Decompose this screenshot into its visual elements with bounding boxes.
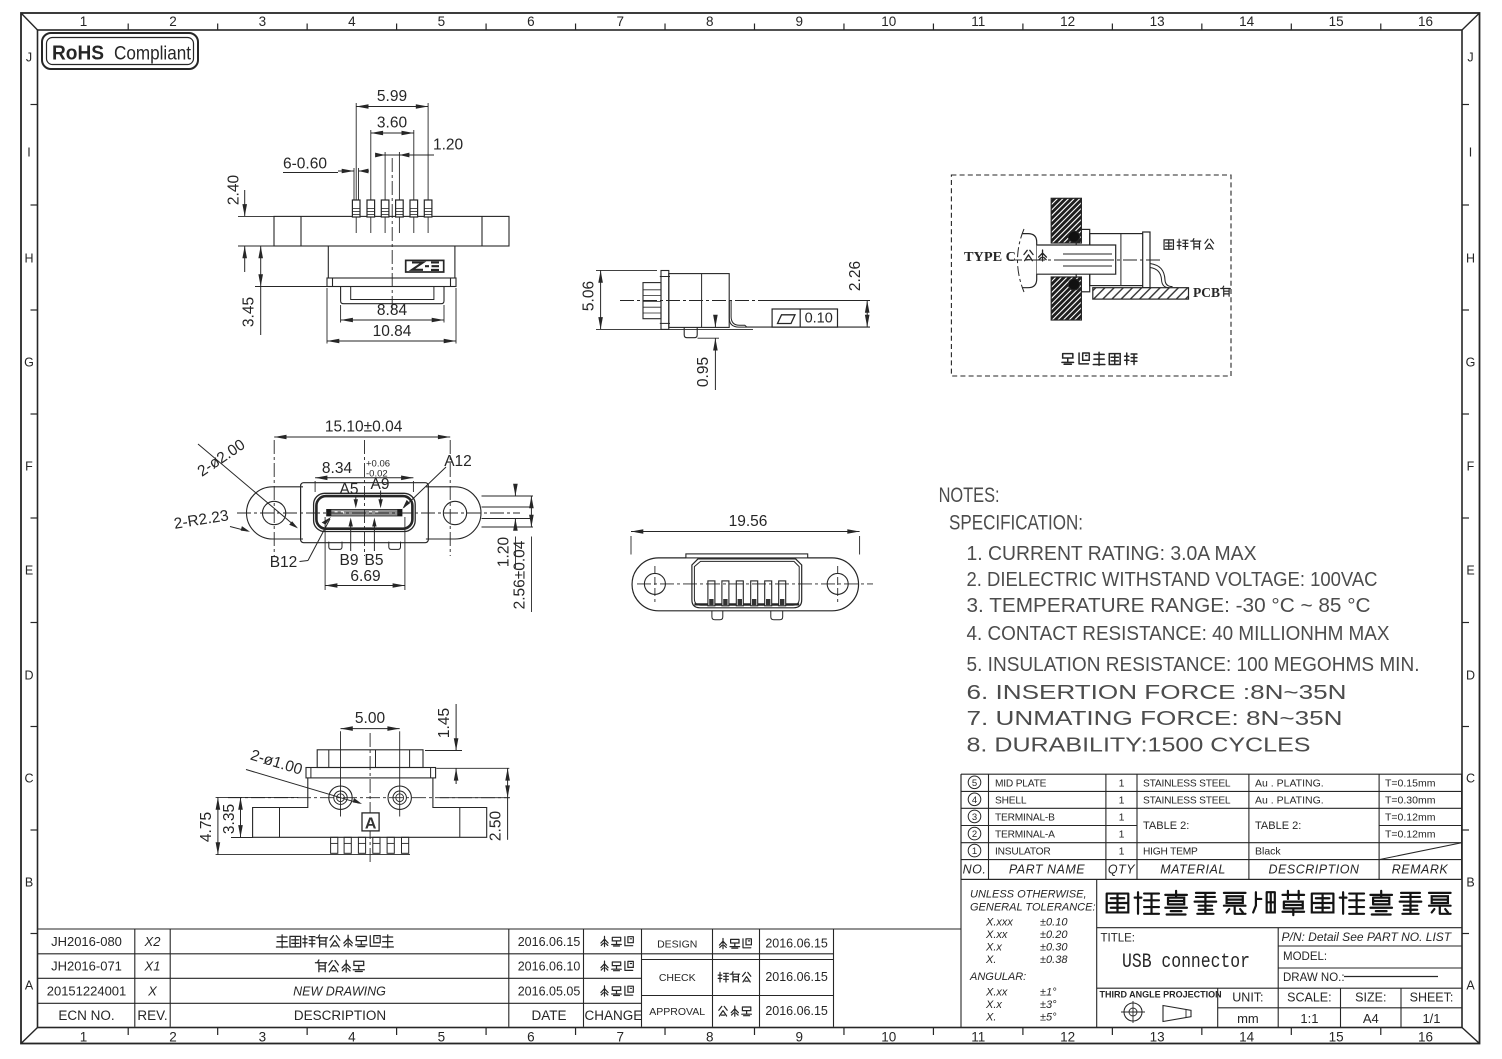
- svg-text:TITLE:: TITLE:: [1101, 933, 1136, 945]
- svg-text:1. CURRENT RATING: 3.0A MA: 1. CURRENT RATING: 3.0A MAX: [967, 542, 1257, 565]
- svg-text:ANGULAR:: ANGULAR:: [969, 971, 1026, 983]
- svg-text:D: D: [24, 669, 33, 683]
- svg-text:3.35: 3.35: [221, 804, 238, 834]
- svg-text:Au . PLATING.: Au . PLATING.: [1255, 794, 1324, 806]
- svg-text:GENERAL TOLERANCE:: GENERAL TOLERANCE:: [970, 902, 1096, 914]
- svg-text:C: C: [24, 772, 33, 786]
- svg-text:10.84: 10.84: [373, 323, 412, 340]
- svg-text:Black: Black: [1255, 846, 1281, 858]
- svg-text:G: G: [1466, 356, 1476, 370]
- svg-text:INSULATOR: INSULATOR: [995, 847, 1051, 858]
- svg-text:11: 11: [971, 14, 985, 29]
- svg-text:5: 5: [972, 778, 977, 789]
- svg-text:15: 15: [1329, 1030, 1344, 1045]
- svg-text:A: A: [1466, 979, 1475, 993]
- svg-text:9: 9: [796, 14, 804, 29]
- svg-text:NO.: NO.: [963, 863, 987, 877]
- svg-text:USB connector: USB connector: [1122, 951, 1250, 974]
- svg-text:B5: B5: [365, 552, 384, 569]
- svg-text:X.x: X.x: [985, 999, 1002, 1011]
- svg-text:JH2016-080: JH2016-080: [51, 934, 122, 949]
- svg-text:13: 13: [1150, 14, 1165, 29]
- svg-text:SIZE:: SIZE:: [1355, 991, 1386, 1005]
- svg-text:2.50: 2.50: [488, 811, 505, 842]
- svg-text:5. INSULATION RESISTANCE: 1: 5. INSULATION RESISTANCE: 100 MEGOHMS MI…: [967, 653, 1420, 676]
- svg-text:2016.05.05: 2016.05.05: [518, 984, 581, 998]
- svg-text:±0.38: ±0.38: [1040, 954, 1068, 966]
- svg-text:0.10: 0.10: [805, 310, 833, 326]
- svg-text:X2: X2: [144, 934, 162, 949]
- svg-text:A12: A12: [444, 453, 472, 470]
- svg-text:15.10±0.04: 15.10±0.04: [325, 419, 403, 436]
- svg-text:MODEL:: MODEL:: [1283, 951, 1327, 963]
- svg-text:B12: B12: [270, 554, 298, 571]
- svg-text:TABLE 2:: TABLE 2:: [1143, 820, 1189, 832]
- svg-text:3. TEMPERATURE RANGE: -30 °: 3. TEMPERATURE RANGE: -30 °C ~ 85 °C: [967, 594, 1371, 617]
- svg-text:A9: A9: [371, 476, 390, 493]
- svg-text:F: F: [1467, 460, 1475, 474]
- svg-text:2.56±0.04: 2.56±0.04: [512, 540, 529, 609]
- svg-text:6: 6: [527, 1030, 535, 1045]
- svg-text:±1°: ±1°: [1040, 987, 1057, 999]
- svg-text:NOTES:: NOTES:: [939, 484, 1000, 507]
- svg-text:A4: A4: [1363, 1011, 1379, 1026]
- svg-text:2: 2: [169, 14, 177, 29]
- svg-text:7: 7: [617, 1030, 625, 1045]
- svg-text:C: C: [1466, 772, 1475, 786]
- svg-text:REV.: REV.: [137, 1008, 167, 1023]
- svg-text:2.40: 2.40: [226, 175, 243, 206]
- svg-text:UNLESS OTHERWISE,: UNLESS OTHERWISE,: [970, 889, 1087, 901]
- svg-text:4. CONTACT RESISTANCE: 40: 4. CONTACT RESISTANCE: 40 MILLIONHM MAX: [967, 622, 1390, 645]
- svg-text:8. DURABILITY:1500 CYCLES: 8. DURABILITY:1500 CYCLES: [967, 734, 1311, 757]
- svg-text:TERMINAL-A: TERMINAL-A: [995, 830, 1055, 841]
- svg-text:8: 8: [706, 14, 714, 29]
- svg-text:X.x: X.x: [985, 942, 1002, 954]
- svg-text:ECN NO.: ECN NO.: [58, 1008, 114, 1023]
- svg-text:X.xx: X.xx: [985, 987, 1008, 999]
- svg-text:DESIGN: DESIGN: [657, 939, 697, 951]
- svg-text:X.xxx: X.xxx: [985, 917, 1013, 929]
- svg-text:1: 1: [972, 846, 977, 857]
- svg-text:JH2016-071: JH2016-071: [51, 959, 122, 974]
- svg-text:3: 3: [259, 1030, 267, 1045]
- svg-text:1:1: 1:1: [1300, 1011, 1318, 1026]
- svg-text:5: 5: [438, 1030, 446, 1045]
- svg-text:20151224001: 20151224001: [47, 983, 127, 998]
- svg-text:2: 2: [972, 829, 977, 840]
- svg-text:CHECK: CHECK: [659, 972, 696, 984]
- svg-text:5.00: 5.00: [355, 710, 386, 727]
- svg-text:UNIT:: UNIT:: [1232, 991, 1263, 1005]
- svg-text:4: 4: [348, 1030, 356, 1045]
- svg-text:6.69: 6.69: [350, 568, 380, 585]
- svg-text:3.60: 3.60: [377, 115, 408, 132]
- svg-text:I: I: [27, 146, 30, 160]
- svg-text:8.34: 8.34: [322, 460, 353, 477]
- svg-text:T=0.30mm: T=0.30mm: [1385, 794, 1436, 806]
- svg-text:1.20: 1.20: [496, 537, 513, 568]
- svg-text:MATERIAL: MATERIAL: [1160, 863, 1226, 877]
- svg-text:T=0.15mm: T=0.15mm: [1385, 777, 1436, 789]
- svg-text:7: 7: [617, 14, 625, 29]
- svg-text:1: 1: [80, 1030, 88, 1045]
- svg-text:DRAW NO.:: DRAW NO.:: [1283, 972, 1345, 984]
- svg-text:6-0.60: 6-0.60: [283, 156, 327, 173]
- svg-text:8.84: 8.84: [377, 302, 408, 319]
- svg-text:A5: A5: [340, 481, 359, 498]
- svg-text:1: 1: [1119, 777, 1125, 789]
- svg-text:J: J: [1467, 51, 1473, 65]
- svg-text:TABLE 2:: TABLE 2:: [1255, 820, 1301, 832]
- svg-text:13: 13: [1150, 1030, 1165, 1045]
- svg-text:Compliant: Compliant: [114, 44, 192, 65]
- svg-text:X1: X1: [144, 959, 161, 974]
- svg-text:1: 1: [80, 14, 88, 29]
- svg-text:2-ø1.00: 2-ø1.00: [248, 747, 304, 779]
- svg-text:B: B: [25, 876, 33, 890]
- svg-text:8: 8: [706, 1030, 714, 1045]
- svg-text:TERMINAL-B: TERMINAL-B: [995, 812, 1055, 823]
- svg-text:±5°: ±5°: [1040, 1012, 1057, 1024]
- svg-text:E: E: [25, 564, 33, 578]
- svg-text:A: A: [25, 979, 34, 993]
- svg-text:STAINLESS STEEL: STAINLESS STEEL: [1143, 778, 1231, 789]
- svg-text:J: J: [26, 51, 32, 65]
- svg-text:9: 9: [796, 1030, 804, 1045]
- svg-text:2016.06.15: 2016.06.15: [765, 937, 828, 951]
- svg-text:PCB: PCB: [1193, 285, 1220, 300]
- svg-text:REMARK: REMARK: [1392, 863, 1449, 877]
- svg-text:7. UNMATING FORCE: 8N~35: 7. UNMATING FORCE: 8N~35N: [967, 707, 1343, 730]
- svg-text:6: 6: [527, 14, 535, 29]
- svg-text:E: E: [1466, 564, 1474, 578]
- svg-text:HIGH TEMP: HIGH TEMP: [1143, 847, 1198, 858]
- svg-text:4: 4: [972, 795, 977, 806]
- svg-text:RoHS: RoHS: [52, 42, 104, 65]
- svg-text:15: 15: [1329, 14, 1344, 29]
- svg-text:CHANGE: CHANGE: [585, 1008, 643, 1023]
- svg-text:DESCRIPTION: DESCRIPTION: [294, 1008, 386, 1023]
- svg-text:X.xx: X.xx: [985, 929, 1008, 941]
- svg-text:B9: B9: [340, 552, 359, 569]
- svg-text:1: 1: [1119, 811, 1125, 823]
- svg-text:10: 10: [881, 1030, 896, 1045]
- svg-text:SCALE:: SCALE:: [1287, 991, 1331, 1005]
- svg-text:2-R2.23: 2-R2.23: [173, 507, 230, 532]
- svg-text:SHELL: SHELL: [995, 795, 1027, 806]
- svg-text:3: 3: [259, 14, 267, 29]
- svg-text:16: 16: [1418, 14, 1433, 29]
- svg-text:QTY: QTY: [1108, 863, 1136, 877]
- svg-text:5: 5: [438, 14, 446, 29]
- svg-text:T=0.12mm: T=0.12mm: [1385, 811, 1436, 823]
- svg-text:H: H: [1466, 252, 1475, 266]
- svg-text:2016.06.15: 2016.06.15: [765, 1004, 828, 1018]
- svg-text:X.: X.: [985, 1012, 996, 1024]
- svg-text:±0.20: ±0.20: [1040, 929, 1068, 941]
- svg-text:Au . PLATING.: Au . PLATING.: [1255, 777, 1324, 789]
- svg-text:4.75: 4.75: [198, 812, 215, 842]
- svg-text:0.95: 0.95: [695, 357, 712, 387]
- svg-text:D: D: [1466, 669, 1475, 683]
- svg-text:P/N: Detail See PART NO. LIST: P/N: Detail See PART NO. LIST: [1282, 930, 1453, 944]
- svg-text:MID PLATE: MID PLATE: [995, 778, 1047, 789]
- svg-text:5.06: 5.06: [581, 281, 598, 311]
- svg-text:mm: mm: [1237, 1011, 1259, 1026]
- svg-text:APPROVAL: APPROVAL: [649, 1006, 705, 1018]
- svg-text:SPECIFICATION:: SPECIFICATION:: [949, 512, 1083, 535]
- svg-text:2: 2: [169, 1030, 177, 1045]
- svg-text:PART NAME: PART NAME: [1009, 863, 1085, 877]
- svg-text:TYPE C: TYPE C: [964, 249, 1016, 264]
- svg-text:14: 14: [1239, 14, 1255, 29]
- svg-text:I: I: [1469, 146, 1472, 160]
- svg-text:±0.30: ±0.30: [1040, 942, 1068, 954]
- svg-text:3: 3: [972, 812, 977, 823]
- svg-text:2016.06.10: 2016.06.10: [518, 960, 581, 974]
- svg-text:14: 14: [1239, 1030, 1255, 1045]
- svg-text:2.26: 2.26: [847, 261, 864, 291]
- svg-text:1: 1: [1119, 794, 1125, 806]
- svg-text:X: X: [147, 983, 158, 998]
- svg-text:1.45: 1.45: [436, 708, 453, 738]
- svg-text:10: 10: [881, 14, 896, 29]
- svg-text:2-ø2.00: 2-ø2.00: [195, 436, 249, 480]
- svg-text:6. INSERTION FORCE :8N~3: 6. INSERTION FORCE :8N~35N: [967, 681, 1347, 704]
- svg-text:1.20: 1.20: [433, 137, 464, 154]
- svg-text:4: 4: [348, 14, 356, 29]
- svg-text:1/1: 1/1: [1422, 1011, 1440, 1026]
- svg-text:2016.06.15: 2016.06.15: [765, 970, 828, 984]
- svg-text:DATE: DATE: [531, 1008, 566, 1023]
- svg-text:12: 12: [1060, 1030, 1075, 1045]
- svg-text:5.99: 5.99: [377, 88, 407, 105]
- svg-text:X.: X.: [985, 954, 996, 966]
- svg-text:16: 16: [1418, 1030, 1433, 1045]
- svg-text:11: 11: [971, 1030, 985, 1045]
- svg-text:G: G: [24, 356, 34, 370]
- svg-text:1: 1: [1119, 829, 1125, 841]
- svg-text:±3°: ±3°: [1040, 999, 1057, 1011]
- svg-text:F: F: [25, 460, 33, 474]
- svg-text:12: 12: [1060, 14, 1075, 29]
- svg-text:T=0.12mm: T=0.12mm: [1385, 829, 1436, 841]
- svg-text:±0.10: ±0.10: [1040, 917, 1068, 929]
- svg-text:1: 1: [1119, 846, 1125, 858]
- svg-text:2016.06.15: 2016.06.15: [518, 935, 581, 949]
- svg-text:A: A: [365, 815, 377, 832]
- svg-text:STAINLESS STEEL: STAINLESS STEEL: [1143, 795, 1231, 806]
- svg-text:DESCRIPTION: DESCRIPTION: [1269, 863, 1360, 877]
- svg-text:2. DIELECTRIC WITHSTAND VOL: 2. DIELECTRIC WITHSTAND VOLTAGE: 100VAC: [967, 568, 1378, 591]
- svg-text:19.56: 19.56: [729, 513, 768, 530]
- svg-text:H: H: [24, 252, 33, 266]
- svg-text:3.45: 3.45: [241, 297, 258, 327]
- svg-text:B: B: [1466, 876, 1474, 890]
- svg-text:NEW DRAWING: NEW DRAWING: [293, 984, 386, 998]
- svg-text:SHEET:: SHEET:: [1410, 991, 1454, 1005]
- svg-text:THIRD ANGLE PROJECTION: THIRD ANGLE PROJECTION: [1100, 990, 1222, 1000]
